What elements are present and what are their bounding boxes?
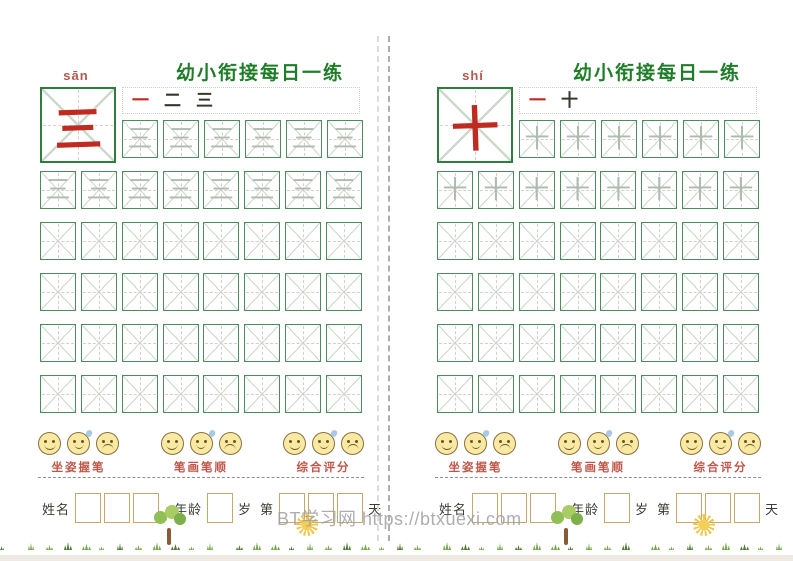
practice-row bbox=[437, 375, 759, 413]
main-character: 三 bbox=[41, 88, 115, 162]
grass-tuft bbox=[253, 542, 261, 550]
grass-tuft bbox=[307, 543, 313, 550]
page-fold-line bbox=[388, 36, 390, 541]
worksheet-sheet: 幼小衔接每日一练 sān 三 一二三 三三三三三三 三三三三三三三三 坐姿握笔 … bbox=[0, 0, 793, 561]
rating-label: 综合评分 bbox=[297, 459, 351, 475]
practice-grid-cell bbox=[560, 273, 596, 311]
grass-tuft bbox=[117, 543, 123, 550]
sun-icon bbox=[693, 514, 715, 536]
dashed-separator bbox=[435, 477, 761, 478]
grass-tuft bbox=[687, 543, 693, 550]
grass-tuft bbox=[461, 544, 470, 550]
practice-row bbox=[40, 324, 362, 362]
frown-face-icon bbox=[493, 432, 516, 455]
sweat-face-icon bbox=[67, 432, 90, 455]
day-suffix-label: 天 bbox=[368, 499, 382, 518]
trace-character: 十 bbox=[684, 121, 718, 157]
practice-grid-cell bbox=[163, 273, 199, 311]
practice-grid-cell: 十 bbox=[682, 171, 718, 209]
day-boxes bbox=[676, 493, 760, 523]
practice-row: 十十十十十十 bbox=[519, 120, 760, 158]
pinyin-label: sān bbox=[40, 68, 112, 83]
practice-grid-cell: 十 bbox=[437, 171, 473, 209]
day-prefix-label: 第 bbox=[657, 499, 671, 518]
sweat-face-icon bbox=[312, 432, 335, 455]
frown-face-icon bbox=[616, 432, 639, 455]
grass-tuft bbox=[479, 546, 484, 550]
trace-character: 三 bbox=[246, 121, 280, 157]
practice-grid-cell bbox=[600, 222, 636, 260]
practice-grid-cell bbox=[81, 222, 117, 260]
practice-grid-cell: 三 bbox=[286, 120, 322, 158]
grass-tuft bbox=[443, 542, 451, 550]
grass-tuft bbox=[189, 546, 194, 550]
practice-grid-cell bbox=[326, 273, 362, 311]
practice-grid-cell bbox=[326, 375, 362, 413]
practice-grid-cell bbox=[122, 273, 158, 311]
grass-tuft bbox=[361, 544, 370, 550]
trace-character: 三 bbox=[164, 172, 198, 208]
grass-tuft bbox=[533, 542, 541, 550]
write-in-box bbox=[604, 493, 630, 523]
practice-grid-cell bbox=[641, 273, 677, 311]
grass-tuft bbox=[135, 545, 142, 550]
trace-character: 十 bbox=[683, 172, 717, 208]
practice-grid-cell: 三 bbox=[203, 171, 239, 209]
smile-face-icon bbox=[680, 432, 703, 455]
practice-grid-cell bbox=[600, 324, 636, 362]
practice-grid-cell bbox=[519, 273, 555, 311]
practice-grid-cell bbox=[81, 375, 117, 413]
rating-group-overall: 综合评分 bbox=[283, 432, 364, 475]
write-in-box bbox=[337, 493, 363, 523]
grass-tuft bbox=[669, 546, 674, 550]
info-footer: 姓名 年龄 岁 第 天 bbox=[439, 491, 763, 525]
practice-grid-cell bbox=[682, 324, 718, 362]
practice-grid-cell: 三 bbox=[326, 171, 362, 209]
rating-label: 坐姿握笔 bbox=[449, 459, 503, 475]
practice-row bbox=[437, 324, 759, 362]
practice-grid-cell bbox=[122, 222, 158, 260]
practice-row bbox=[40, 273, 362, 311]
page-title: 幼小衔接每日一练 bbox=[144, 58, 376, 85]
trace-character: 三 bbox=[245, 172, 279, 208]
practice-grid-cell: 十 bbox=[724, 120, 760, 158]
practice-grid-cell bbox=[163, 324, 199, 362]
practice-grid-cell: 十 bbox=[641, 171, 677, 209]
grass-tuft bbox=[622, 542, 630, 550]
practice-grid-cell bbox=[723, 273, 759, 311]
grass-tuft bbox=[82, 544, 91, 550]
grass-tuft bbox=[64, 542, 72, 550]
stroke-order-strip: 一十 bbox=[519, 87, 757, 114]
age-unit-label: 岁 bbox=[238, 499, 252, 518]
practice-grid-cell bbox=[437, 324, 473, 362]
sweat-face-icon bbox=[709, 432, 732, 455]
sweat-face-icon bbox=[587, 432, 610, 455]
day-boxes bbox=[279, 493, 363, 523]
trace-character: 三 bbox=[286, 172, 320, 208]
practice-grid-cell bbox=[285, 273, 321, 311]
practice-grid-cell bbox=[519, 222, 555, 260]
rating-label: 笔画笔顺 bbox=[174, 459, 228, 475]
sun-icon bbox=[296, 514, 318, 536]
smile-face-icon bbox=[558, 432, 581, 455]
write-in-box bbox=[104, 493, 130, 523]
write-in-box bbox=[734, 493, 760, 523]
name-boxes bbox=[472, 493, 556, 523]
practice-grid-cell bbox=[437, 375, 473, 413]
grass-tuft bbox=[271, 544, 280, 550]
practice-grid-cell: 十 bbox=[519, 171, 555, 209]
grass-tuft bbox=[758, 546, 763, 550]
practice-grid-cell bbox=[285, 222, 321, 260]
sheet-bottom-edge bbox=[0, 555, 793, 561]
frown-face-icon bbox=[738, 432, 761, 455]
grass-tuft bbox=[343, 542, 351, 550]
practice-grid-cell bbox=[519, 324, 555, 362]
grass-tuft bbox=[397, 543, 403, 550]
grass-tuft bbox=[515, 545, 522, 550]
trace-character: 十 bbox=[602, 121, 636, 157]
practice-grid: 十十十十十十十十 bbox=[437, 171, 759, 413]
practice-grid-cell: 三 bbox=[122, 171, 158, 209]
grass-tuft bbox=[289, 546, 294, 550]
practice-grid-cell bbox=[163, 222, 199, 260]
grass-tuft bbox=[705, 545, 712, 550]
stroke-step: 二 bbox=[164, 92, 181, 109]
practice-grid-cell: 三 bbox=[327, 120, 363, 158]
practice-grid-cell: 十 bbox=[723, 171, 759, 209]
grass-tuft bbox=[325, 545, 332, 550]
grass-tuft bbox=[651, 544, 660, 550]
write-in-box bbox=[501, 493, 527, 523]
practice-grid-cell bbox=[641, 375, 677, 413]
frown-face-icon bbox=[341, 432, 364, 455]
rating-section: 坐姿握笔 笔画笔顺 综合评分 bbox=[435, 432, 761, 475]
trace-character: 十 bbox=[438, 172, 472, 208]
trace-character: 十 bbox=[520, 121, 554, 157]
trace-character: 十 bbox=[642, 172, 676, 208]
stroke-step: 一 bbox=[132, 92, 149, 109]
practice-grid-cell bbox=[203, 222, 239, 260]
trace-character: 三 bbox=[287, 121, 321, 157]
practice-grid-cell bbox=[81, 324, 117, 362]
worksheet-page-left: 幼小衔接每日一练 sān 三 一二三 三三三三三三 三三三三三三三三 坐姿握笔 … bbox=[0, 0, 396, 561]
practice-grid-cell bbox=[326, 324, 362, 362]
practice-grid: 三三三三三三三三 bbox=[40, 171, 362, 413]
practice-grid-cell bbox=[478, 324, 514, 362]
practice-grid-cell: 十 bbox=[560, 120, 596, 158]
rating-section: 坐姿握笔 笔画笔顺 综合评分 bbox=[38, 432, 364, 475]
practice-row bbox=[40, 375, 362, 413]
grass-decoration bbox=[0, 536, 793, 552]
practice-grid-cell: 三 bbox=[40, 171, 76, 209]
practice-grid-cell bbox=[285, 324, 321, 362]
practice-grid-cell bbox=[478, 375, 514, 413]
practice-grid-cell bbox=[723, 222, 759, 260]
practice-grid-cell bbox=[40, 375, 76, 413]
grass-tuft bbox=[568, 546, 573, 550]
practice-grid-cell bbox=[641, 324, 677, 362]
practice-grid-cell bbox=[560, 222, 596, 260]
age-unit-label: 岁 bbox=[635, 499, 649, 518]
grass-tuft bbox=[722, 542, 730, 550]
rating-group-strokes: 笔画笔顺 bbox=[161, 432, 242, 475]
main-character-box: 十 bbox=[437, 87, 513, 163]
sweat-face-icon bbox=[464, 432, 487, 455]
practice-grid-cell: 十 bbox=[642, 120, 678, 158]
main-character-box: 三 bbox=[40, 87, 116, 163]
trace-character: 十 bbox=[601, 172, 635, 208]
practice-grid-cell bbox=[437, 222, 473, 260]
trace-character: 十 bbox=[561, 121, 595, 157]
grass-tuft bbox=[497, 543, 503, 550]
grass-tuft bbox=[586, 543, 592, 550]
rating-group-posture: 坐姿握笔 bbox=[38, 432, 119, 475]
practice-grid-cell: 十 bbox=[560, 171, 596, 209]
practice-row: 三三三三三三 bbox=[122, 120, 363, 158]
practice-grid-cell bbox=[600, 273, 636, 311]
rating-label: 笔画笔顺 bbox=[571, 459, 625, 475]
stroke-step: 十 bbox=[561, 92, 578, 109]
trace-character: 十 bbox=[479, 172, 513, 208]
stroke-step: 一 bbox=[529, 92, 546, 109]
practice-grid-cell bbox=[682, 222, 718, 260]
grass-tuft bbox=[604, 545, 611, 550]
practice-grid-cell bbox=[244, 324, 280, 362]
practice-grid-cell: 三 bbox=[244, 171, 280, 209]
practice-grid-cell bbox=[244, 375, 280, 413]
practice-grid-cell bbox=[560, 375, 596, 413]
practice-grid-cell bbox=[641, 222, 677, 260]
info-footer: 姓名 年龄 岁 第 天 bbox=[42, 491, 366, 525]
practice-grid-cell: 三 bbox=[163, 171, 199, 209]
practice-grid-cell bbox=[560, 324, 596, 362]
write-in-box bbox=[472, 493, 498, 523]
practice-grid-cell: 十 bbox=[683, 120, 719, 158]
practice-grid-cell: 三 bbox=[163, 120, 199, 158]
day-suffix-label: 天 bbox=[765, 499, 779, 518]
practice-grid-cell bbox=[723, 324, 759, 362]
practice-grid-cell bbox=[122, 375, 158, 413]
practice-row: 三三三三三三三三 bbox=[40, 171, 362, 209]
practice-row: 十十十十十十十十 bbox=[437, 171, 759, 209]
practice-grid-cell: 三 bbox=[285, 171, 321, 209]
practice-row bbox=[437, 273, 759, 311]
practice-grid-cell: 三 bbox=[245, 120, 281, 158]
smile-face-icon bbox=[161, 432, 184, 455]
grass-tuft bbox=[99, 546, 104, 550]
frown-face-icon bbox=[96, 432, 119, 455]
rating-label: 坐姿握笔 bbox=[52, 459, 106, 475]
tree-icon bbox=[549, 503, 585, 545]
grass-tuft bbox=[28, 543, 34, 550]
day-prefix-label: 第 bbox=[260, 499, 274, 518]
grass-tuft bbox=[207, 543, 213, 550]
practice-grid-cell bbox=[81, 273, 117, 311]
page-fold-line-inner bbox=[377, 36, 379, 541]
rating-group-posture: 坐姿握笔 bbox=[435, 432, 516, 475]
grass-tuft bbox=[414, 545, 421, 550]
dashed-separator bbox=[38, 477, 364, 478]
trace-character: 三 bbox=[205, 121, 239, 157]
practice-grid-cell bbox=[326, 222, 362, 260]
smile-face-icon bbox=[38, 432, 61, 455]
trace-character: 十 bbox=[643, 121, 677, 157]
smile-face-icon bbox=[435, 432, 458, 455]
practice-grid-cell bbox=[478, 222, 514, 260]
practice-grid-cell: 十 bbox=[601, 120, 637, 158]
grass-tuft bbox=[0, 546, 4, 550]
practice-grid-cell bbox=[437, 273, 473, 311]
grass-tuft bbox=[379, 546, 384, 550]
rating-group-strokes: 笔画笔顺 bbox=[558, 432, 639, 475]
practice-grid-cell bbox=[163, 375, 199, 413]
trace-character: 十 bbox=[725, 121, 759, 157]
stroke-order-strip: 一二三 bbox=[122, 87, 360, 114]
main-character: 十 bbox=[438, 88, 512, 162]
grass-tuft bbox=[740, 544, 749, 550]
practice-grid-cell bbox=[682, 273, 718, 311]
trace-character: 三 bbox=[41, 172, 75, 208]
page-title: 幼小衔接每日一练 bbox=[541, 58, 773, 85]
grass-tuft bbox=[236, 545, 243, 550]
practice-grid-cell bbox=[40, 324, 76, 362]
practice-grid-cell bbox=[203, 324, 239, 362]
practice-grid-cell: 三 bbox=[204, 120, 240, 158]
practice-grid-cell bbox=[203, 273, 239, 311]
practice-grid-cell bbox=[40, 273, 76, 311]
practice-grid-cell bbox=[519, 375, 555, 413]
practice-row bbox=[40, 222, 362, 260]
trace-character: 三 bbox=[204, 172, 238, 208]
practice-grid-cell bbox=[682, 375, 718, 413]
trace-character: 三 bbox=[123, 172, 157, 208]
age-box bbox=[604, 493, 630, 523]
trace-character: 十 bbox=[724, 172, 758, 208]
trace-character: 三 bbox=[123, 121, 157, 157]
practice-grid-cell bbox=[122, 324, 158, 362]
practice-grid-cell: 十 bbox=[600, 171, 636, 209]
practice-grid-cell bbox=[478, 273, 514, 311]
practice-grid-cell bbox=[203, 375, 239, 413]
worksheet-page-right: 幼小衔接每日一练 shí 十 一十 十十十十十十 十十十十十十十十 坐姿握笔 笔… bbox=[397, 0, 793, 561]
practice-grid-cell: 三 bbox=[122, 120, 158, 158]
name-label: 姓名 bbox=[42, 499, 70, 518]
smile-face-icon bbox=[283, 432, 306, 455]
practice-grid-cell bbox=[244, 222, 280, 260]
grass-tuft bbox=[776, 543, 782, 550]
practice-grid-cell bbox=[723, 375, 759, 413]
practice-grid-cell: 十 bbox=[478, 171, 514, 209]
frown-face-icon bbox=[219, 432, 242, 455]
trace-character: 三 bbox=[328, 121, 362, 157]
practice-grid-cell bbox=[600, 375, 636, 413]
trace-character: 三 bbox=[327, 172, 361, 208]
practice-grid-cell bbox=[285, 375, 321, 413]
rating-group-overall: 综合评分 bbox=[680, 432, 761, 475]
practice-grid-cell: 十 bbox=[519, 120, 555, 158]
trace-character: 十 bbox=[561, 172, 595, 208]
write-in-box bbox=[207, 493, 233, 523]
trace-character: 三 bbox=[164, 121, 198, 157]
write-in-box bbox=[75, 493, 101, 523]
rating-label: 综合评分 bbox=[694, 459, 748, 475]
pinyin-label: shí bbox=[437, 68, 509, 83]
practice-grid-cell bbox=[40, 222, 76, 260]
name-boxes bbox=[75, 493, 159, 523]
practice-grid-cell: 三 bbox=[81, 171, 117, 209]
age-box bbox=[207, 493, 233, 523]
practice-row bbox=[437, 222, 759, 260]
practice-grid-cell bbox=[244, 273, 280, 311]
stroke-step: 三 bbox=[196, 92, 213, 109]
trace-character: 十 bbox=[520, 172, 554, 208]
name-label: 姓名 bbox=[439, 499, 467, 518]
grass-tuft bbox=[46, 545, 53, 550]
trace-character: 三 bbox=[82, 172, 116, 208]
tree-icon bbox=[152, 503, 188, 545]
sweat-face-icon bbox=[190, 432, 213, 455]
